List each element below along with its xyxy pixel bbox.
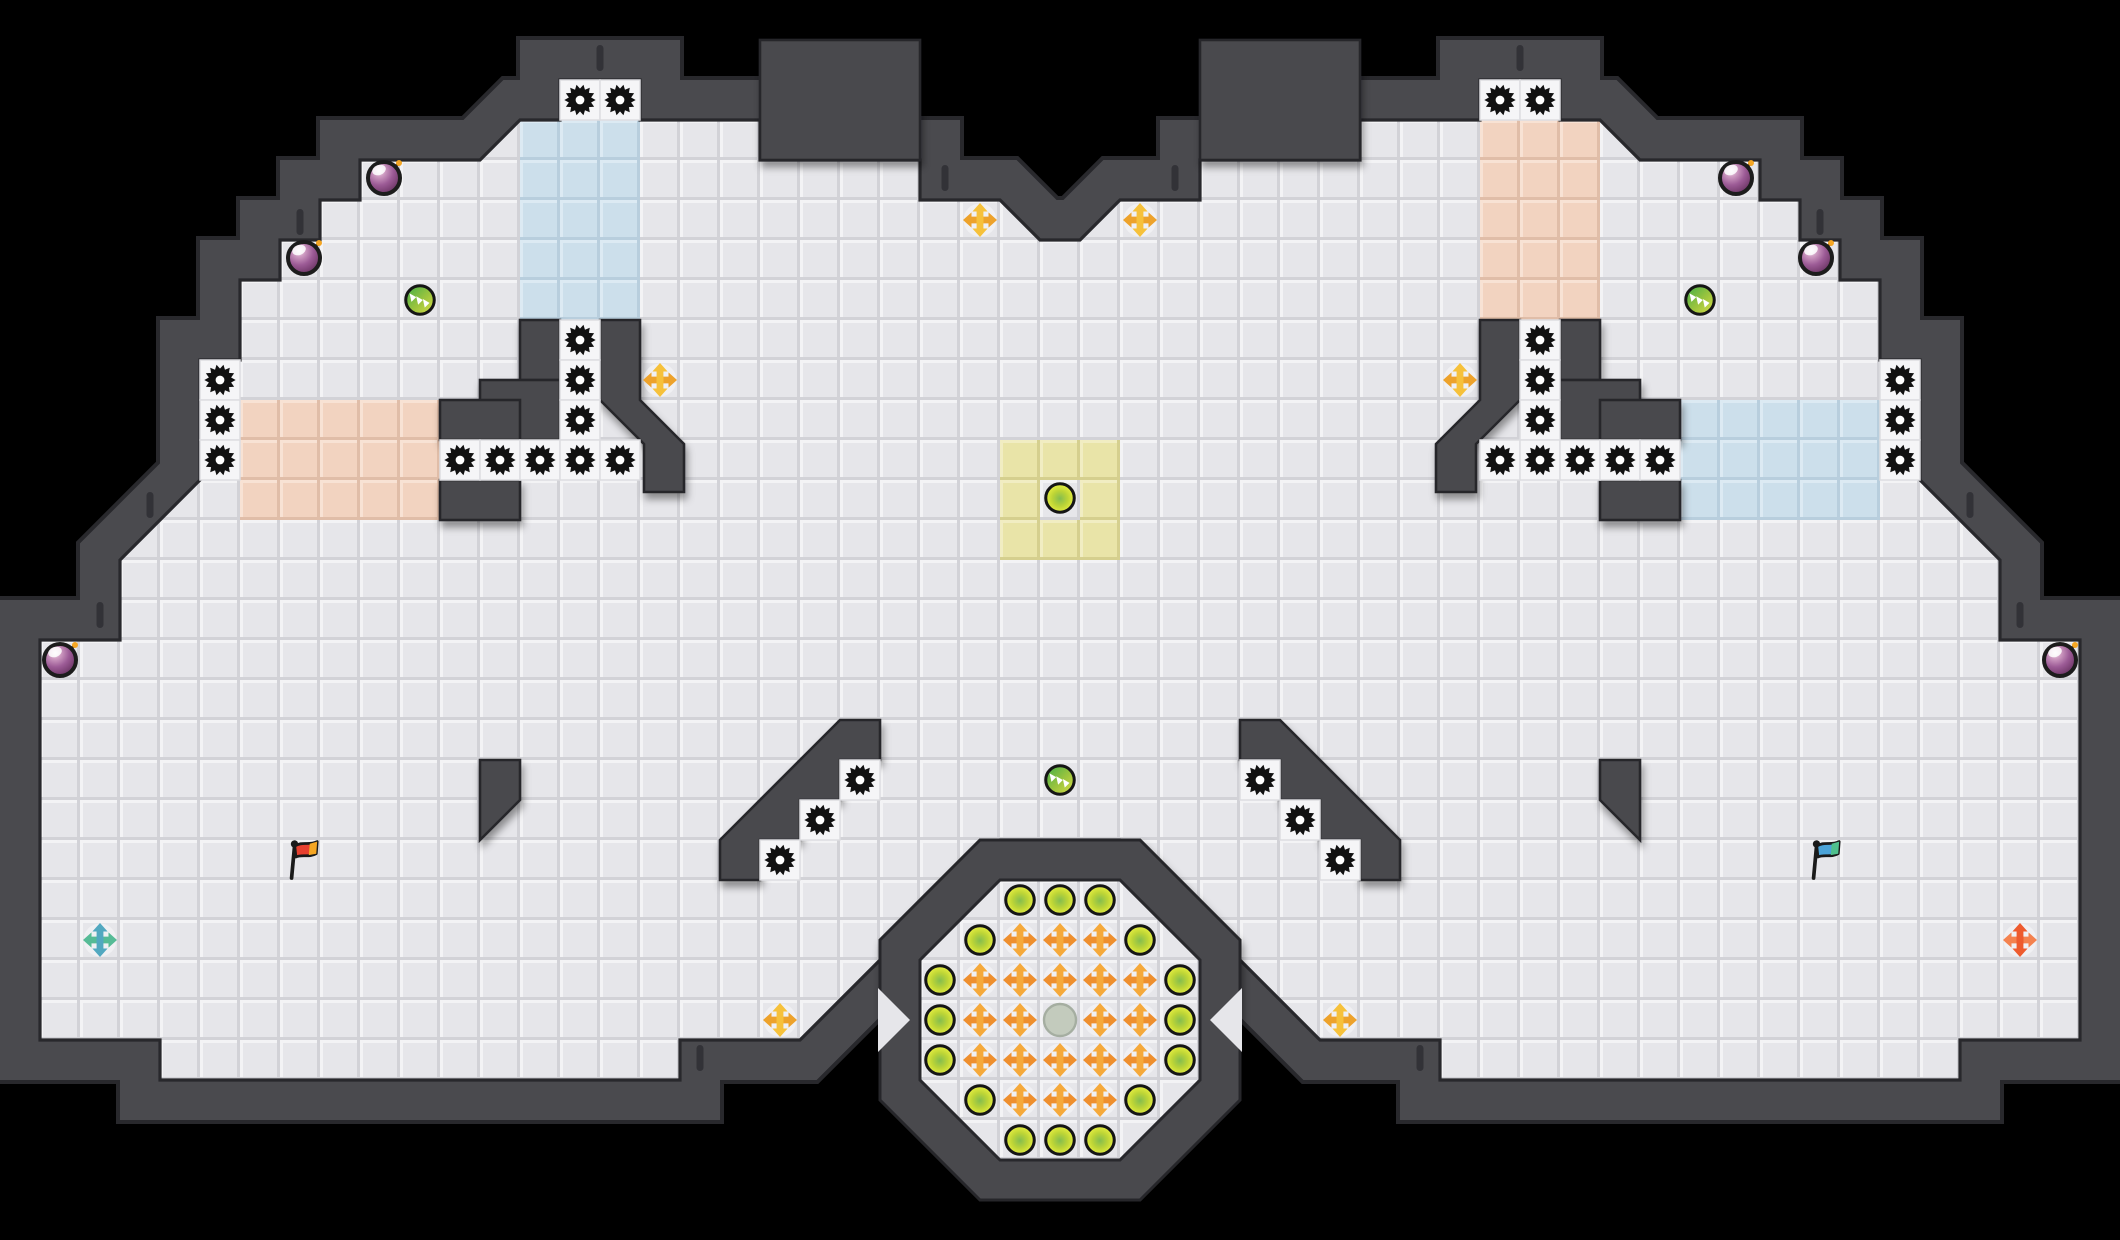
bomb-icon bbox=[1720, 160, 1754, 194]
game-map bbox=[0, 0, 2120, 1240]
powerup-orb bbox=[1086, 1126, 1115, 1155]
wall-dash bbox=[697, 1045, 704, 1071]
wall-block bbox=[760, 40, 920, 160]
gray-pad bbox=[1044, 1004, 1076, 1036]
wall-block bbox=[1600, 480, 1680, 520]
powerup-orb bbox=[926, 1006, 955, 1035]
powerup-orb bbox=[966, 1086, 995, 1115]
pink-tiles-top-right bbox=[1480, 120, 1600, 320]
chevron-orb bbox=[1686, 286, 1715, 315]
bomb-icon bbox=[368, 160, 402, 194]
blue-tiles-right bbox=[1680, 400, 1880, 520]
pink-tiles-left bbox=[240, 400, 440, 520]
wall-block bbox=[1600, 400, 1680, 440]
bomb-icon bbox=[288, 240, 322, 274]
game-map-screenshot bbox=[0, 0, 2120, 1240]
powerup-orb bbox=[1126, 1086, 1155, 1115]
powerup-orb bbox=[1046, 1126, 1075, 1155]
bomb-icon bbox=[1800, 240, 1834, 274]
wall-block bbox=[520, 320, 560, 380]
chevron-orb bbox=[1046, 766, 1075, 795]
powerup-orb bbox=[1166, 1046, 1195, 1075]
powerup-orb bbox=[1006, 1126, 1035, 1155]
chevron-orb bbox=[406, 286, 435, 315]
powerup-orb bbox=[966, 926, 995, 955]
wall-dash bbox=[942, 165, 949, 191]
wall-dash bbox=[147, 492, 154, 518]
blue-tiles-top-left bbox=[520, 120, 640, 320]
bomb-icon bbox=[2044, 642, 2078, 676]
powerup-orb bbox=[1166, 966, 1195, 995]
powerup-orb bbox=[1006, 886, 1035, 915]
wall-dash bbox=[597, 45, 604, 71]
wall-block bbox=[440, 480, 520, 520]
wall-block bbox=[440, 400, 520, 440]
wall-dash bbox=[297, 209, 304, 235]
wall-dash bbox=[1817, 209, 1824, 235]
wall-dash bbox=[1417, 1045, 1424, 1071]
powerup-orb bbox=[926, 1046, 955, 1075]
powerup-orb bbox=[1046, 484, 1075, 513]
wall-block bbox=[1560, 320, 1600, 380]
powerup-orb bbox=[1126, 926, 1155, 955]
wall-dash bbox=[1967, 492, 1974, 518]
wall-block bbox=[1200, 40, 1360, 160]
powerup-orb bbox=[1046, 886, 1075, 915]
powerup-orb bbox=[1166, 1006, 1195, 1035]
wall-dash bbox=[97, 602, 104, 628]
wall-dash bbox=[2017, 602, 2024, 628]
bomb-icon bbox=[44, 642, 78, 676]
powerup-orb bbox=[1086, 886, 1115, 915]
wall-dash bbox=[1517, 45, 1524, 71]
wall-dash bbox=[1172, 165, 1179, 191]
powerup-orb bbox=[926, 966, 955, 995]
